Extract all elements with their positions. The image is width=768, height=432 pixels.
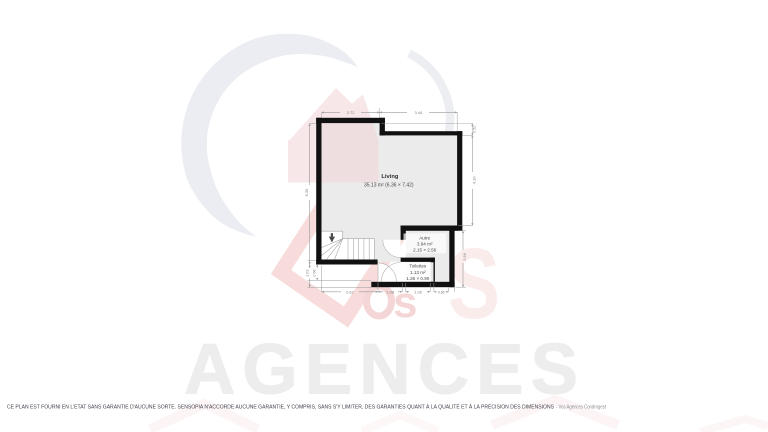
svg-text:0.52: 0.52: [473, 126, 477, 133]
svg-text:2.62: 2.62: [346, 289, 355, 294]
svg-text:4.10: 4.10: [472, 176, 477, 185]
svg-text:1.26: 1.26: [414, 289, 423, 294]
svg-text:S: S: [448, 228, 500, 340]
svg-text:35.13 m² (6.36 × 7.42): 35.13 m² (6.36 × 7.42): [364, 182, 414, 188]
svg-text:Toilettes: Toilettes: [409, 264, 427, 269]
svg-text:AGENCES: AGENCES: [184, 331, 578, 410]
svg-text:2.56: 2.56: [462, 252, 467, 261]
svg-text:- Vos Agences Condrogest: - Vos Agences Condrogest: [556, 404, 607, 410]
svg-text:0.66: 0.66: [313, 269, 317, 276]
svg-text:3.94 m²: 3.94 m²: [417, 242, 433, 247]
svg-text:6.35: 6.35: [304, 188, 309, 197]
svg-text:0.66: 0.66: [438, 291, 445, 295]
svg-text:1.03: 1.03: [305, 270, 309, 277]
svg-text:3.44: 3.44: [415, 110, 424, 115]
svg-text:CE PLAN EST FOURNI EN L'ETAT S: CE PLAN EST FOURNI EN L'ETAT SANS GARANT…: [7, 403, 555, 410]
svg-text:1.26 × 0.90: 1.26 × 0.90: [406, 276, 430, 281]
svg-text:1.08: 1.08: [386, 289, 395, 294]
svg-text:Living: Living: [381, 174, 399, 180]
svg-text:1.13 m²: 1.13 m²: [410, 270, 426, 275]
svg-text:2.72: 2.72: [347, 110, 356, 115]
svg-text:Autre: Autre: [419, 235, 430, 240]
svg-text:2.15 × 2.56: 2.15 × 2.56: [413, 248, 437, 253]
